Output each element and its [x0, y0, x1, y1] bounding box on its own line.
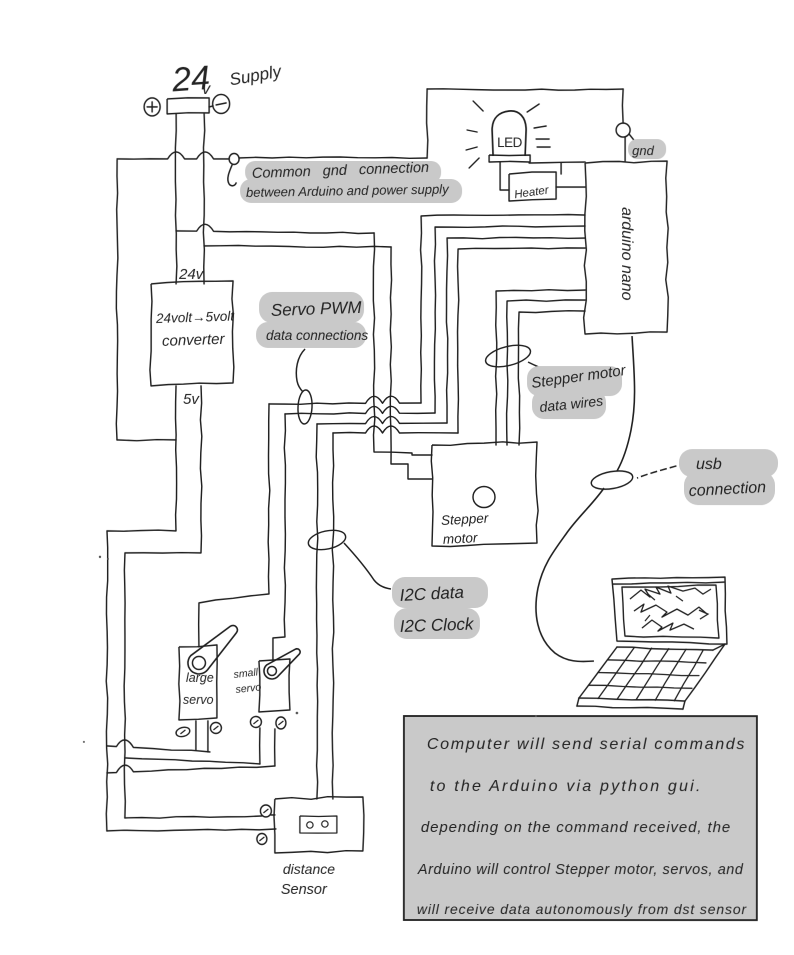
- svg-text:Stepper: Stepper: [441, 511, 490, 528]
- svg-text:gnd: gnd: [632, 143, 654, 158]
- svg-text:to the Arduino via python gui.: to the Arduino via python gui.: [430, 778, 703, 795]
- svg-text:Servo PWM: Servo PWM: [271, 298, 363, 320]
- svg-text:I2C Clock: I2C Clock: [399, 614, 475, 636]
- svg-text:arduino nano: arduino nano: [618, 207, 635, 301]
- svg-text:motor: motor: [443, 530, 479, 547]
- svg-text:large: large: [186, 671, 214, 685]
- svg-text:depending on the command recei: depending on the command received, the: [421, 819, 731, 836]
- svg-text:v: v: [202, 81, 211, 98]
- svg-text:I2C data: I2C data: [399, 583, 464, 605]
- svg-text:Computer will send serial comm: Computer will send serial commands: [427, 736, 746, 753]
- svg-text:LED: LED: [497, 135, 523, 150]
- svg-text:24v: 24v: [178, 266, 205, 283]
- svg-text:usb: usb: [696, 456, 722, 473]
- svg-text:will receive data autonomously: will receive data autonomously from dst …: [417, 901, 748, 917]
- svg-text:5v: 5v: [183, 391, 200, 408]
- svg-text:distance: distance: [283, 861, 335, 877]
- svg-text:data connections: data connections: [266, 328, 368, 343]
- svg-text:converter: converter: [162, 331, 226, 350]
- svg-text:Arduino will control Stepper m: Arduino will control Stepper motor, serv…: [417, 862, 744, 878]
- svg-text:Sensor: Sensor: [281, 882, 328, 898]
- svg-text:24volt→5volt: 24volt→5volt: [155, 308, 236, 326]
- svg-text:servo: servo: [183, 693, 214, 707]
